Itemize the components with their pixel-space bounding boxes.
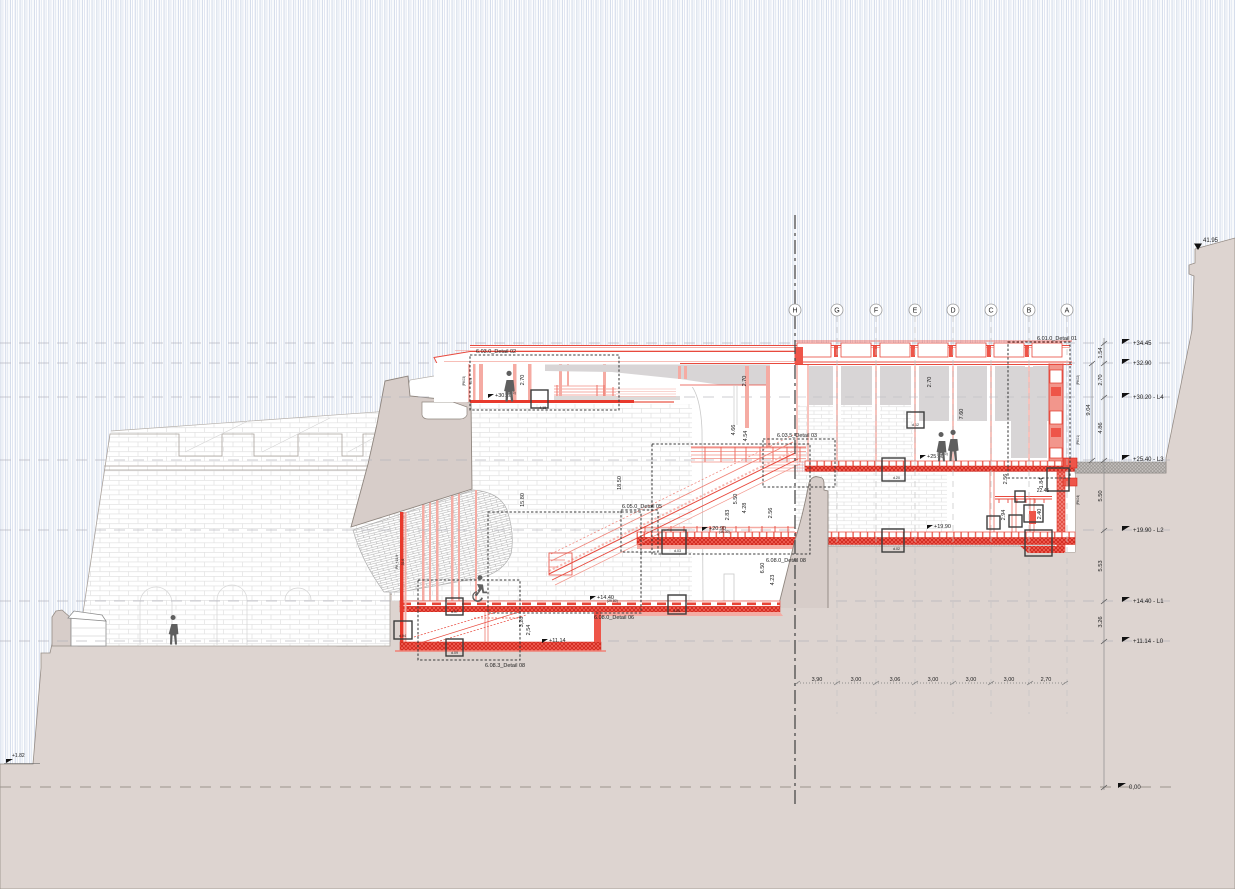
svg-text:d.07: d.07 — [451, 610, 458, 614]
svg-text:2.70: 2.70 — [520, 375, 526, 386]
svg-text:1.84: 1.84 — [1039, 478, 1045, 489]
svg-text:A: A — [1065, 308, 1070, 315]
svg-text:3,90: 3,90 — [812, 677, 823, 683]
svg-text:+19.90: +19.90 — [934, 524, 951, 530]
svg-text:+14.40 - L1: +14.40 - L1 — [1133, 599, 1164, 605]
svg-text:d.12: d.12 — [912, 423, 919, 427]
svg-text:d.04: d.04 — [399, 634, 406, 638]
svg-text:(29.80): (29.80) — [607, 599, 618, 603]
svg-text:4.23: 4.23 — [770, 575, 776, 586]
svg-text:C: C — [988, 308, 993, 315]
svg-text:22.45: 22.45 — [1037, 488, 1050, 494]
svg-text:2.70: 2.70 — [1098, 374, 1104, 385]
svg-text:41.95: 41.95 — [1203, 238, 1219, 244]
svg-text:d.20: d.20 — [893, 476, 900, 480]
svg-text:(PK01): (PK01) — [1076, 435, 1080, 446]
svg-text:2.94: 2.94 — [1001, 510, 1007, 521]
svg-text:2,54: 2,54 — [526, 625, 532, 636]
svg-text:d.02: d.02 — [893, 547, 900, 551]
svg-text:(PK04): (PK04) — [1076, 495, 1080, 506]
svg-text:+25.40 - L3: +25.40 - L3 — [1133, 457, 1164, 463]
svg-text:2.40: 2.40 — [1037, 509, 1043, 520]
svg-text:+11.14 - L0: +11.14 - L0 — [1133, 639, 1164, 645]
svg-text:+32.90: +32.90 — [1133, 361, 1152, 367]
svg-text:d.05: d.05 — [673, 609, 680, 613]
svg-text:2.70: 2.70 — [927, 377, 933, 388]
svg-text:3,00: 3,00 — [966, 677, 977, 683]
svg-text:d.03: d.03 — [674, 549, 681, 553]
svg-text:15.80: 15.80 — [520, 493, 526, 507]
svg-text:6.50: 6.50 — [760, 563, 766, 574]
svg-text:9.04: 9.04 — [1086, 404, 1092, 416]
svg-text:3,00: 3,00 — [928, 677, 939, 683]
svg-text:6.03.5_Detail 03: 6.03.5_Detail 03 — [777, 433, 817, 439]
svg-text:6.05.0_Detail 05: 6.05.0_Detail 05 — [622, 504, 662, 510]
svg-text:5.50: 5.50 — [733, 494, 739, 505]
svg-text:18.50: 18.50 — [617, 476, 623, 490]
svg-text:PK +19.9: PK +19.9 — [395, 555, 399, 569]
svg-text:d.09: d.09 — [451, 651, 458, 655]
svg-text:3,28: 3,28 — [519, 617, 525, 628]
svg-text:(36.30): (36.30) — [719, 530, 730, 534]
svg-text:-4.15: -4.15 — [538, 406, 546, 410]
svg-text:3.26: 3.26 — [1098, 616, 1104, 627]
svg-text:1.54: 1.54 — [1098, 347, 1104, 359]
svg-text:0,00: 0,00 — [1129, 785, 1141, 791]
svg-text:F: F — [874, 308, 878, 315]
svg-text:6.01.0_Detail 01: 6.01.0_Detail 01 — [1037, 336, 1077, 342]
svg-text:(PK03): (PK03) — [462, 376, 466, 387]
svg-text:31.6: 31.6 — [401, 559, 405, 566]
svg-text:4.28: 4.28 — [742, 503, 748, 514]
svg-text:H: H — [792, 308, 797, 315]
svg-text:4.54: 4.54 — [743, 431, 749, 442]
svg-text:6.08.3_Detail 08: 6.08.3_Detail 08 — [485, 663, 525, 669]
svg-text:G: G — [834, 308, 839, 315]
svg-text:(PK02): (PK02) — [1076, 375, 1080, 386]
svg-text:2.56: 2.56 — [768, 508, 774, 519]
svg-text:B: B — [1027, 308, 1032, 315]
svg-text:3,06: 3,06 — [890, 677, 901, 683]
svg-text:3,00: 3,00 — [851, 677, 862, 683]
svg-text:2,70: 2,70 — [1041, 677, 1052, 683]
svg-text:2.56: 2.56 — [1003, 474, 1009, 485]
svg-text:+34.45: +34.45 — [1133, 341, 1152, 347]
svg-text:4.86: 4.86 — [1098, 422, 1104, 433]
svg-text:5.53: 5.53 — [1098, 560, 1104, 571]
svg-text:2.70: 2.70 — [742, 376, 748, 387]
svg-text:4.66: 4.66 — [731, 425, 737, 436]
svg-text:+19.90 - L2: +19.90 - L2 — [1133, 528, 1164, 534]
svg-text:+11.14: +11.14 — [549, 638, 566, 644]
svg-text:2.83: 2.83 — [725, 510, 731, 521]
svg-text:6.03.0_Detail 02: 6.03.0_Detail 02 — [476, 349, 516, 355]
svg-text:5.50: 5.50 — [1098, 490, 1104, 501]
svg-text:E: E — [913, 308, 918, 315]
svg-text:3,00: 3,00 — [1004, 677, 1015, 683]
svg-text:37.3: 37.3 — [469, 378, 473, 385]
svg-text:+1.82: +1.82 — [12, 753, 25, 759]
svg-text:6.08.0_Detail 06: 6.08.0_Detail 06 — [594, 615, 634, 621]
svg-text:6.08.0_Detail 08: 6.08.0_Detail 08 — [766, 558, 806, 564]
svg-text:+30.20 - L4: +30.20 - L4 — [1133, 395, 1164, 401]
svg-text:D: D — [950, 308, 955, 315]
svg-text:7.60: 7.60 — [959, 409, 965, 420]
